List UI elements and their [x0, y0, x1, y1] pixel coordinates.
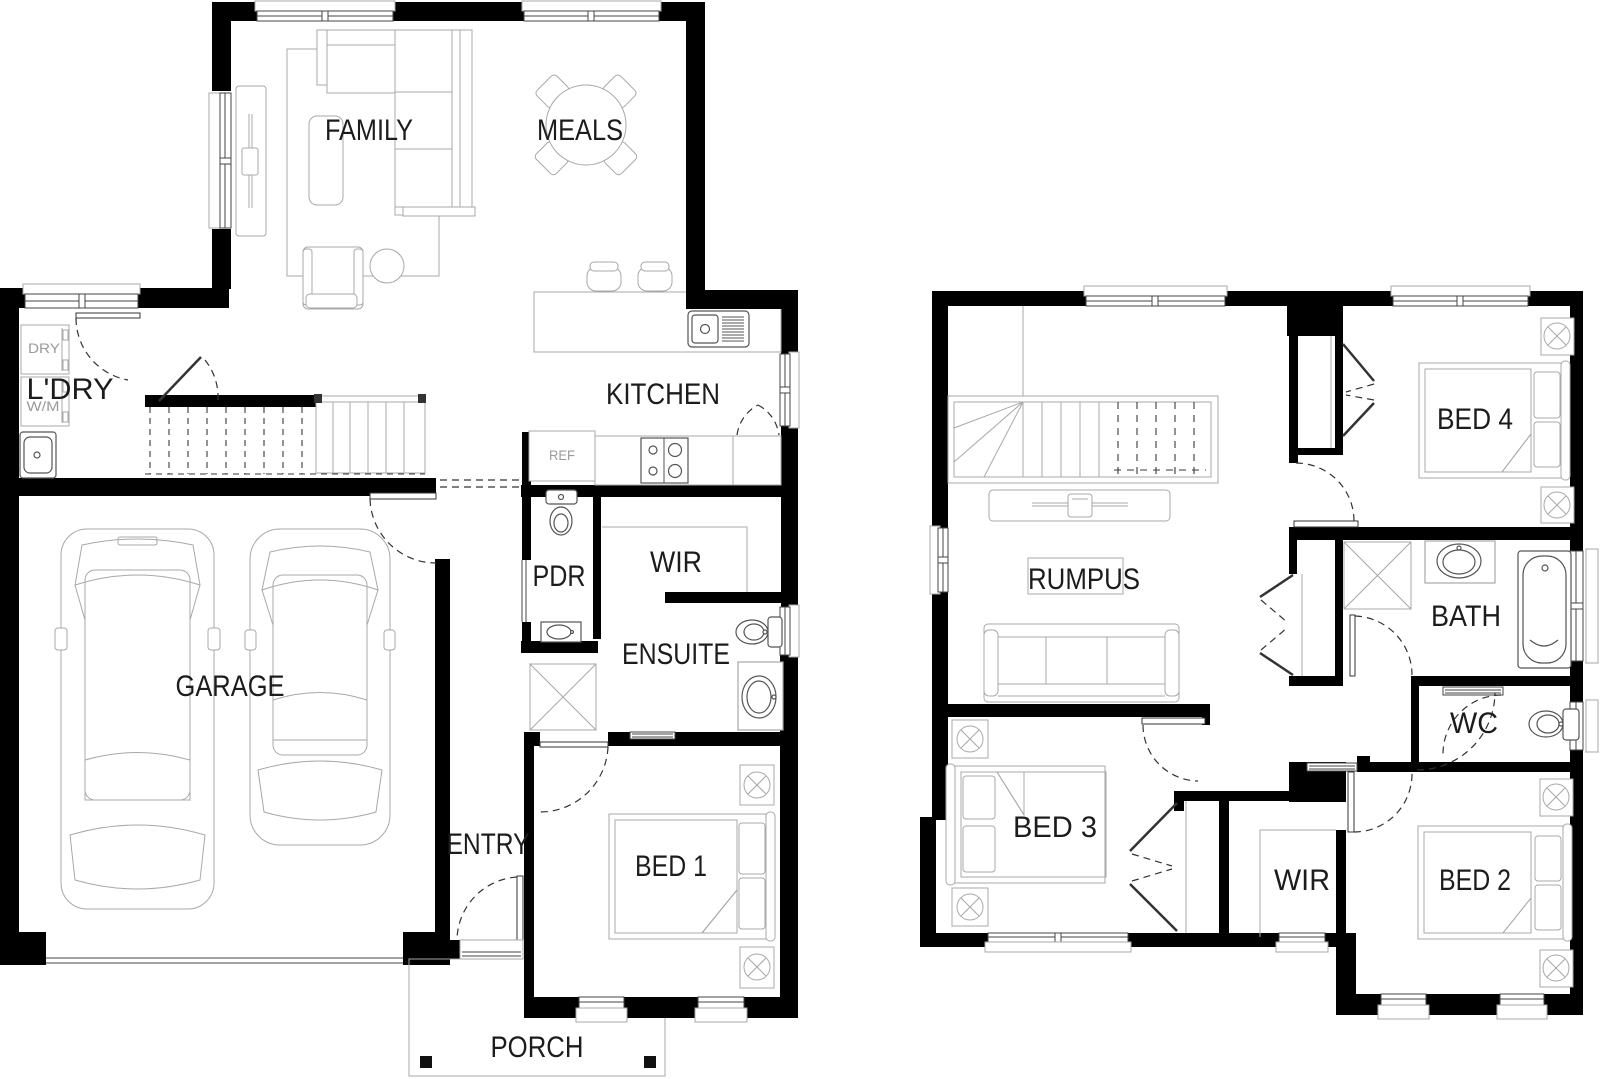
svg-text:BED 1: BED 1 [635, 850, 707, 883]
svg-text:PORCH: PORCH [491, 1031, 584, 1064]
svg-text:BED 3: BED 3 [1013, 811, 1097, 844]
svg-text:W/M: W/M [27, 398, 60, 414]
svg-text:DRY: DRY [28, 340, 61, 356]
svg-text:WIR: WIR [1274, 864, 1330, 897]
svg-text:KITCHEN: KITCHEN [606, 378, 720, 411]
svg-text:ENTRY: ENTRY [447, 828, 530, 861]
svg-text:PDR: PDR [533, 560, 586, 593]
svg-text:RUMPUS: RUMPUS [1028, 563, 1140, 596]
svg-text:GARAGE: GARAGE [176, 670, 285, 703]
svg-text:FAMILY: FAMILY [325, 114, 413, 147]
svg-text:REF: REF [549, 447, 575, 463]
svg-text:ENSUITE: ENSUITE [622, 638, 730, 671]
svg-text:BED 2: BED 2 [1439, 864, 1511, 897]
svg-text:MEALS: MEALS [537, 114, 623, 147]
svg-text:WC: WC [1450, 707, 1498, 740]
svg-text:WIR: WIR [650, 546, 702, 579]
svg-text:BED 4: BED 4 [1437, 403, 1513, 436]
svg-text:BATH: BATH [1431, 600, 1501, 633]
